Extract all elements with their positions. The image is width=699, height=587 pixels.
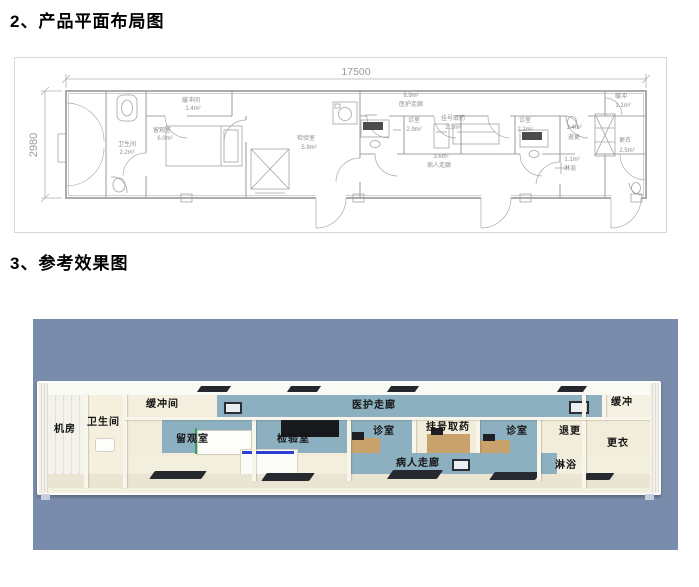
plan-label-gengyi: 更衣 xyxy=(619,136,631,144)
svg-text:2.2m²: 2.2m² xyxy=(517,127,532,133)
render-label-tuigeng: 退更 xyxy=(559,427,581,437)
room-weishengjian xyxy=(86,395,125,473)
plan-dim-height: 2980 xyxy=(28,133,40,157)
floor-plan-drawing: 17500 2980 xyxy=(15,58,666,232)
render-label-zhenshi-1: 诊室 xyxy=(373,427,395,437)
plan-walls xyxy=(58,91,646,198)
container-foot xyxy=(645,494,654,500)
floor-mat xyxy=(261,473,315,481)
render-label-zhenshi-2: 诊室 xyxy=(506,427,528,437)
floor-plan-figure: 17500 2980 xyxy=(14,57,667,233)
svg-text:6.0m²: 6.0m² xyxy=(157,136,172,142)
render-label-liuguanshi: 留观室 xyxy=(176,435,209,445)
partition xyxy=(252,419,256,481)
plan-label-guahao: 挂号取药 xyxy=(441,114,465,122)
plan-label-weishengjian: 卫生间 xyxy=(118,140,136,148)
render-label-linyu: 淋浴 xyxy=(555,461,577,471)
plan-label-liuguanshi: 留观室 xyxy=(153,126,171,134)
section-2-heading: 2、产品平面布局图 xyxy=(10,7,164,32)
plan-label-bingren-zoulang: 病人走廊 xyxy=(427,161,451,169)
floor-mat xyxy=(489,472,541,480)
ceiling-vent xyxy=(387,386,419,392)
container-right-end xyxy=(650,383,659,493)
plan-label-tuigeng: 退更 xyxy=(568,133,580,141)
plan-label-jianyanshi: 检验室 xyxy=(297,134,315,142)
partition xyxy=(537,419,541,481)
hwall-midband xyxy=(125,417,650,420)
desk-monitor-1 xyxy=(352,432,364,440)
container-foot xyxy=(41,494,50,500)
render-label-gengyi: 更衣 xyxy=(607,439,629,449)
partition xyxy=(347,419,351,481)
toilet-fixture xyxy=(117,95,137,121)
plan-door-arcs xyxy=(66,98,646,228)
wall-monitor xyxy=(224,402,242,414)
toilet-fixture-3d xyxy=(95,438,115,452)
section-3-heading: 3、参考效果图 xyxy=(10,249,128,274)
plan-dimensions xyxy=(41,74,650,202)
render-label-weishengjian: 卫生间 xyxy=(87,418,120,428)
partition xyxy=(412,419,416,453)
corner-toilet xyxy=(113,178,125,192)
svg-text:1.1m²: 1.1m² xyxy=(564,157,579,163)
wall-monitor xyxy=(452,459,470,471)
ceiling-vent xyxy=(197,386,231,392)
ceiling-vent xyxy=(557,386,587,392)
floor-mat xyxy=(149,471,207,479)
partition xyxy=(123,395,127,488)
wall-monitor xyxy=(569,401,589,414)
analyzer-stripe xyxy=(242,451,294,454)
plan-label-yihu-zoulang: 医护走廊 xyxy=(399,100,423,108)
svg-text:2.9m²: 2.9m² xyxy=(406,127,421,133)
plan-label-huanchongjian: 缓冲间 xyxy=(182,96,200,104)
render-label-huanchongjian: 缓冲间 xyxy=(146,400,179,410)
svg-text:1.4m²: 1.4m² xyxy=(185,106,200,112)
svg-text:3.6m²: 3.6m² xyxy=(433,154,448,160)
svg-text:1.1m²: 1.1m² xyxy=(615,103,630,109)
bed xyxy=(166,126,242,166)
svg-text:2.3m²: 2.3m² xyxy=(445,125,460,131)
svg-text:1.4m²: 1.4m² xyxy=(566,125,581,131)
partition xyxy=(476,419,480,453)
render-label-bingren-zoulang: 病人走廊 xyxy=(396,459,440,469)
container-left-end xyxy=(39,383,48,493)
plan-label-zhenshi-1: 诊室 xyxy=(408,116,420,124)
svg-text:8.9m²: 8.9m² xyxy=(403,93,418,99)
render-figure: 机房 卫生间 缓冲间 留观室 检验室 医护走廊 诊室 挂号取药 诊室 病人走廊 … xyxy=(33,319,678,550)
desk-monitor-3 xyxy=(483,434,495,441)
render-label-jifang: 机房 xyxy=(54,425,76,435)
floor-mat xyxy=(582,473,615,480)
container-render: 机房 卫生间 缓冲间 留观室 检验室 医护走廊 诊室 挂号取药 诊室 病人走廊 … xyxy=(37,381,661,495)
plan-room-labels: 卫生间 2.2m² 缓冲间 1.4m² 留观室 6.0m² 检验室 5.9m² … xyxy=(118,92,635,172)
floor-mat xyxy=(387,470,443,479)
ceiling-vent xyxy=(287,386,321,392)
staff-corridor-wall xyxy=(217,395,602,419)
plan-label-zhenshi-2: 诊室 xyxy=(519,116,531,124)
render-label-huanchong: 缓冲 xyxy=(611,398,633,408)
document-page: 2、产品平面布局图 17500 2980 xyxy=(0,0,699,587)
render-label-jianyanshi: 检验室 xyxy=(277,435,310,445)
reg-counter-wood xyxy=(427,434,470,454)
partition xyxy=(84,395,88,488)
render-label-yihu-zoulang: 医护走廊 xyxy=(352,401,396,411)
partition xyxy=(582,395,586,488)
plan-label-linyu: 淋浴 xyxy=(564,164,576,172)
plan-label-huanchong: 缓冲 xyxy=(615,92,627,100)
svg-text:2.2m²: 2.2m² xyxy=(119,150,134,156)
svg-text:5.9m²: 5.9m² xyxy=(301,145,316,151)
render-label-guahao: 挂号取药 xyxy=(426,423,470,433)
plan-dim-width: 17500 xyxy=(341,66,370,78)
svg-text:2.5m²: 2.5m² xyxy=(619,148,634,154)
